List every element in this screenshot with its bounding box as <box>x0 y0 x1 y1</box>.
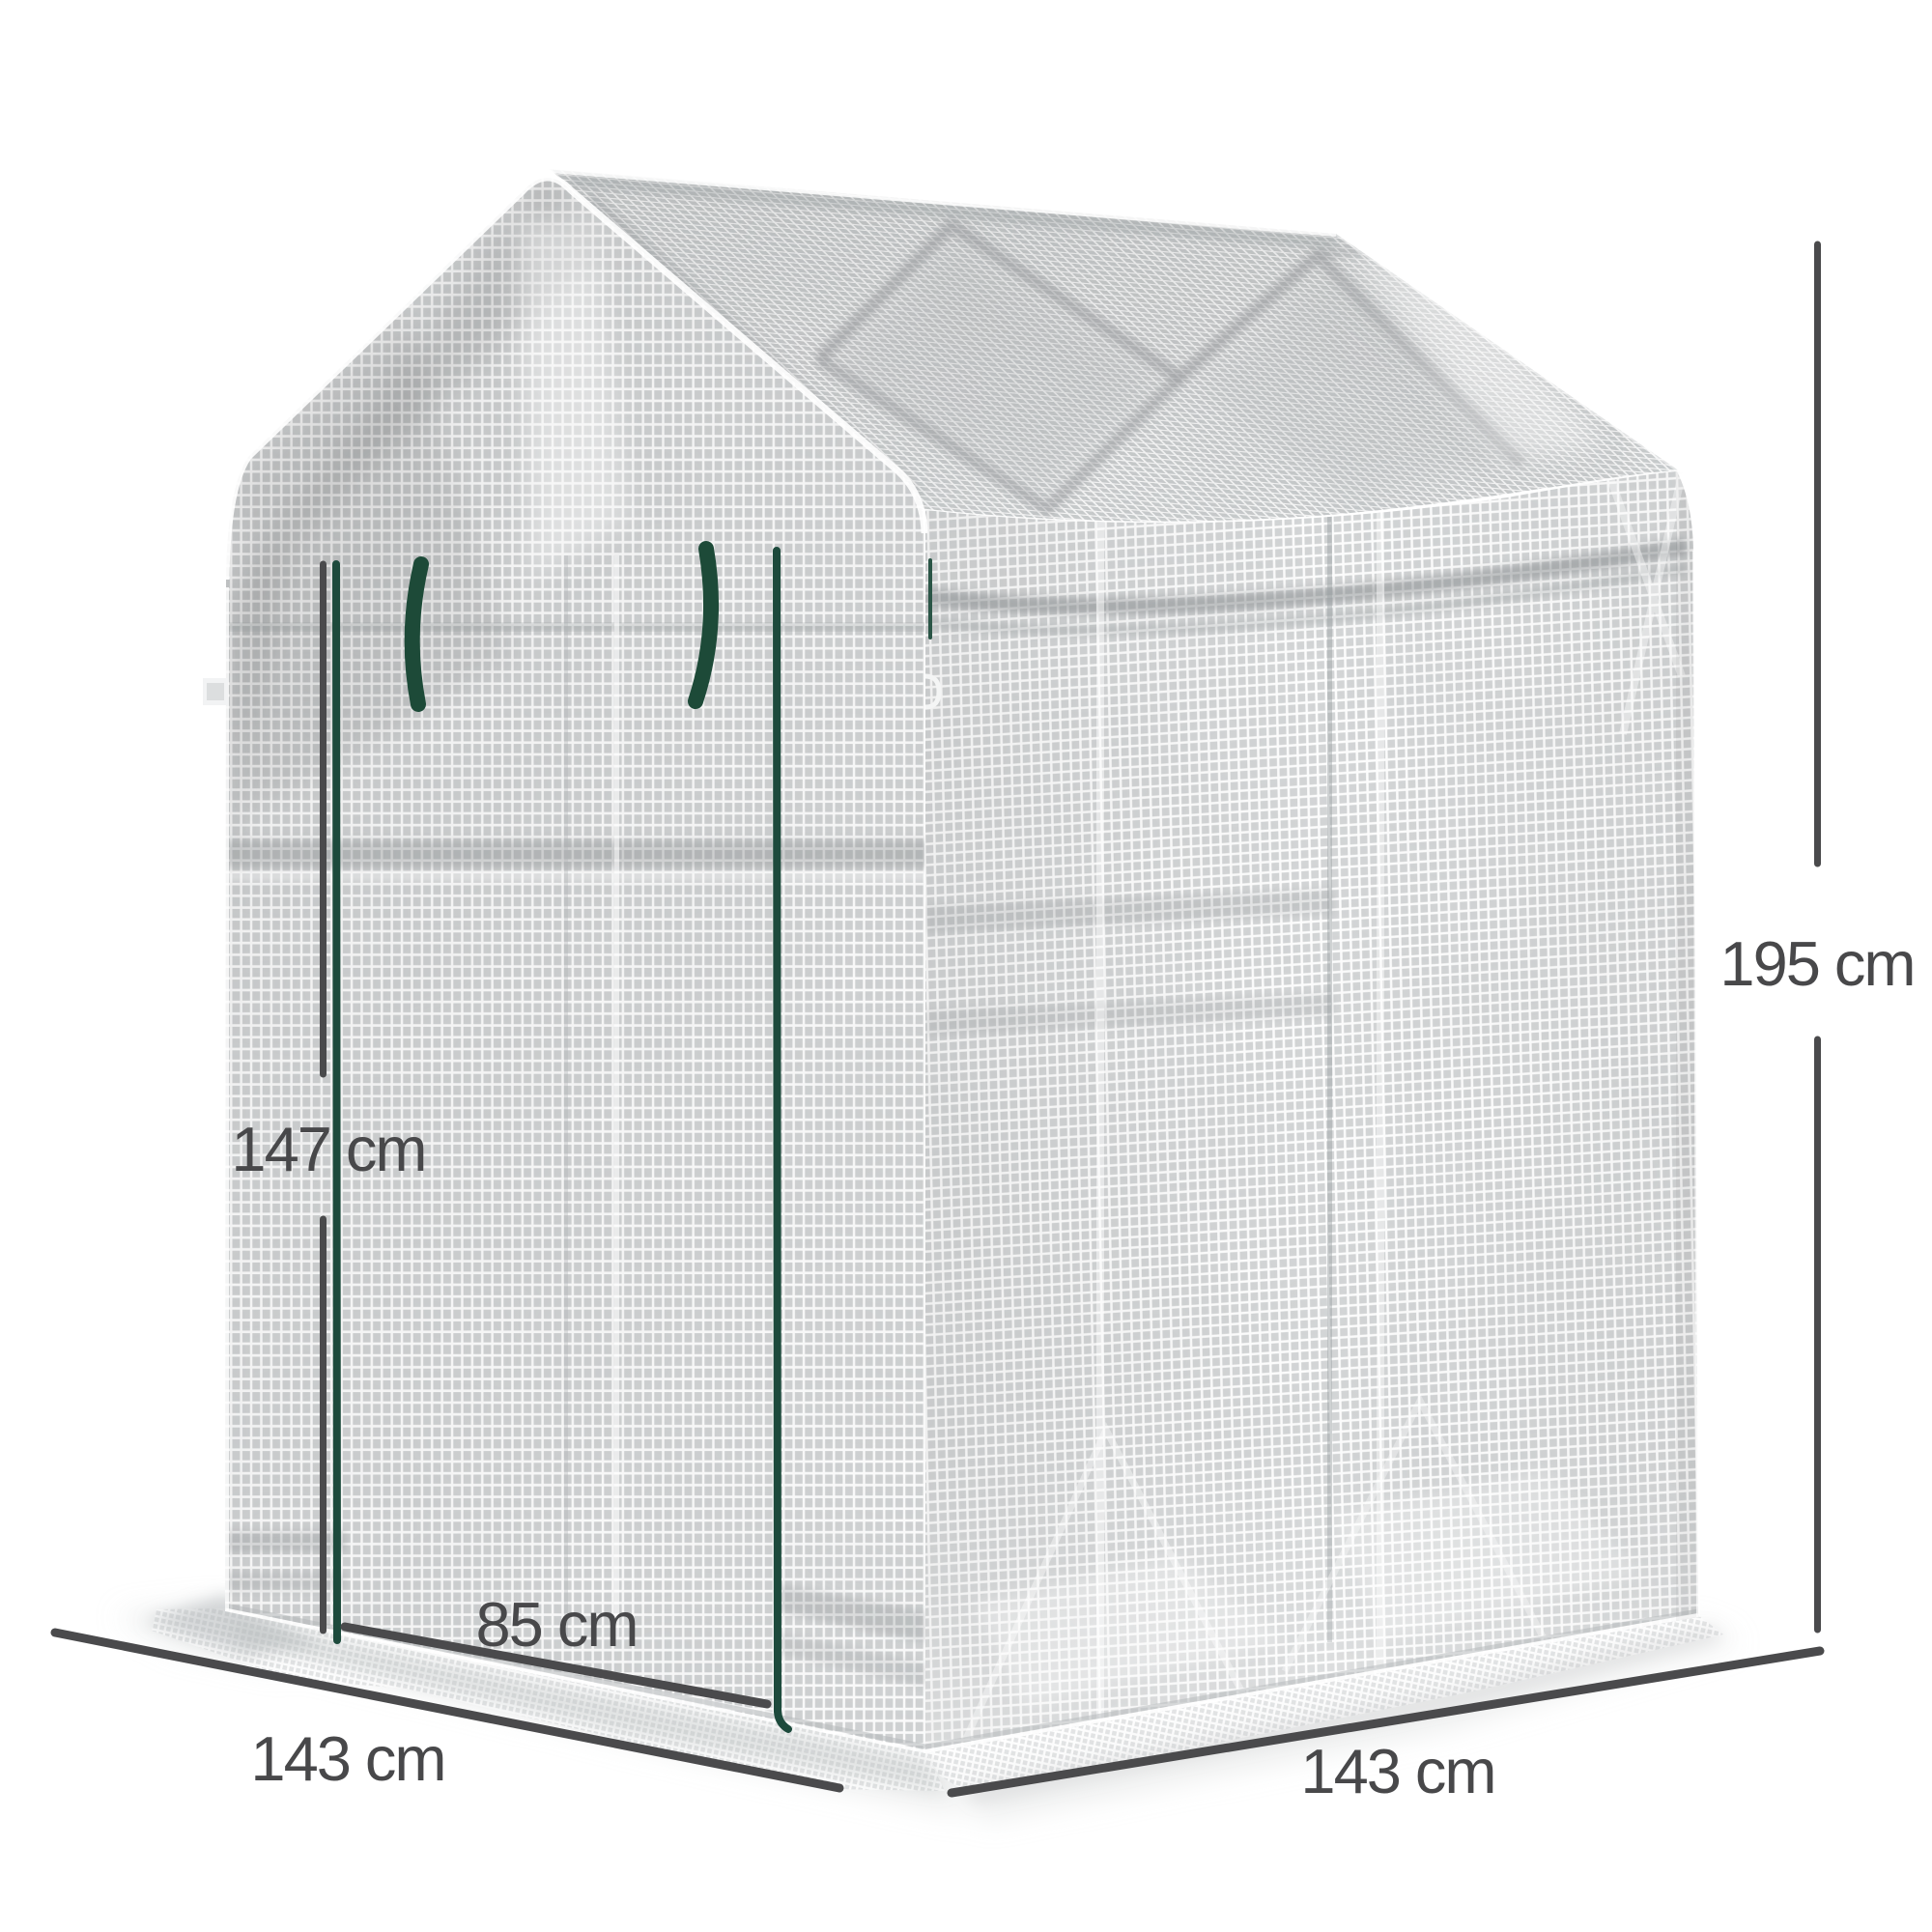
svg-text:85 cm: 85 cm <box>475 1589 637 1660</box>
svg-text:143 cm: 143 cm <box>1300 1736 1494 1806</box>
svg-text:143 cm: 143 cm <box>250 1723 444 1794</box>
svg-text:195 cm: 195 cm <box>1719 928 1914 999</box>
svg-text:147 cm: 147 cm <box>231 1114 425 1184</box>
